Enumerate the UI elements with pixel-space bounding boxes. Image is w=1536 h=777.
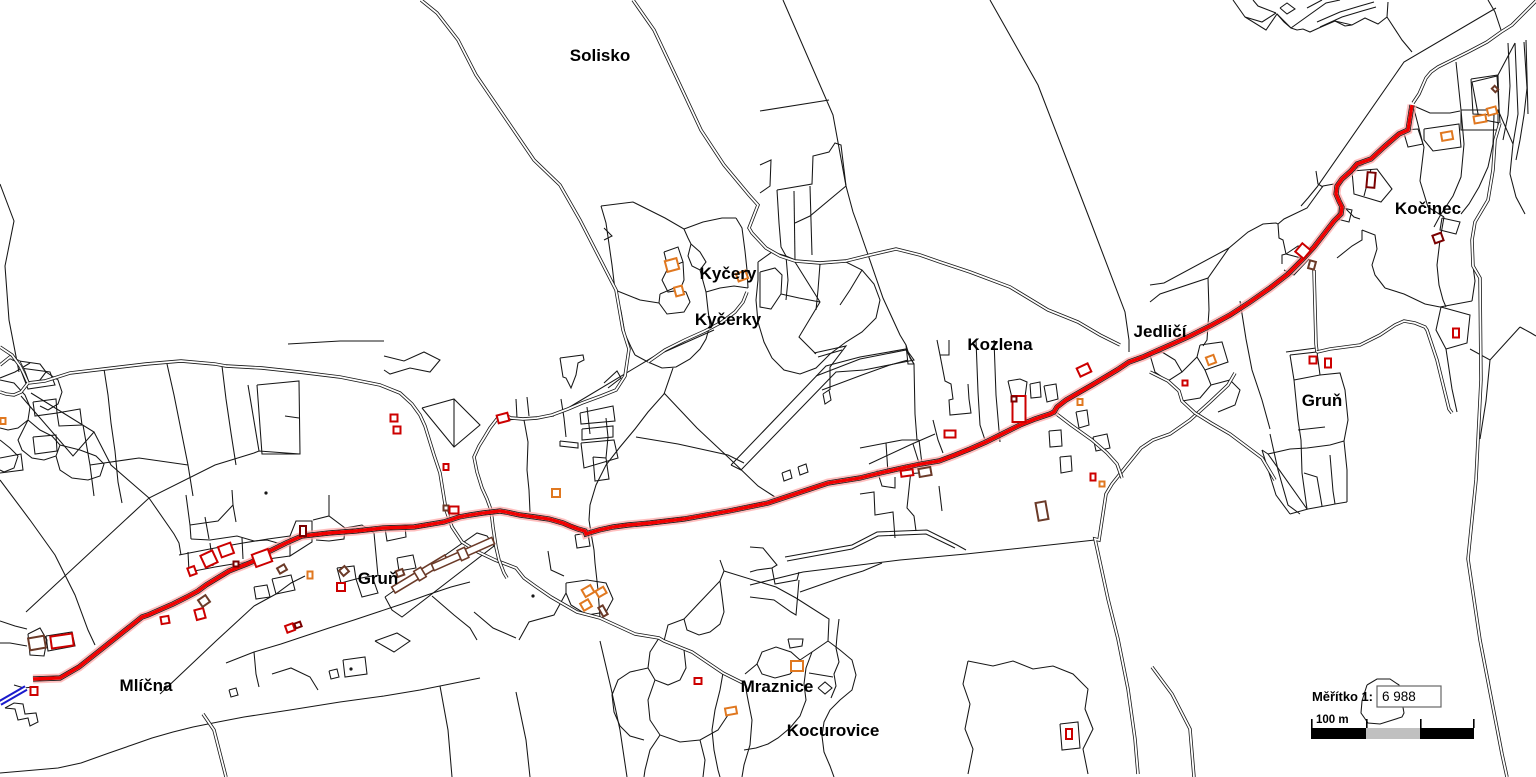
svg-text:100 m: 100 m (1316, 714, 1349, 726)
svg-text:Kocurovice: Kocurovice (787, 721, 880, 740)
svg-text:Mlíčna: Mlíčna (120, 676, 173, 695)
svg-text:Mraznice: Mraznice (741, 677, 814, 696)
svg-text:Jedličí: Jedličí (1134, 322, 1188, 341)
svg-text:Kočinec: Kočinec (1395, 199, 1461, 218)
svg-text:Kozlena: Kozlena (967, 335, 1033, 354)
svg-text:Gruň: Gruň (358, 569, 399, 588)
svg-text:Solisko: Solisko (570, 46, 630, 65)
svg-text:Měřítko 1:: Měřítko 1: (1312, 689, 1373, 704)
svg-text:Kyčerky: Kyčerky (695, 310, 762, 329)
svg-text:Gruň: Gruň (1302, 391, 1343, 410)
svg-text:6 988: 6 988 (1382, 689, 1416, 704)
svg-text:Kyčery: Kyčery (700, 264, 757, 283)
